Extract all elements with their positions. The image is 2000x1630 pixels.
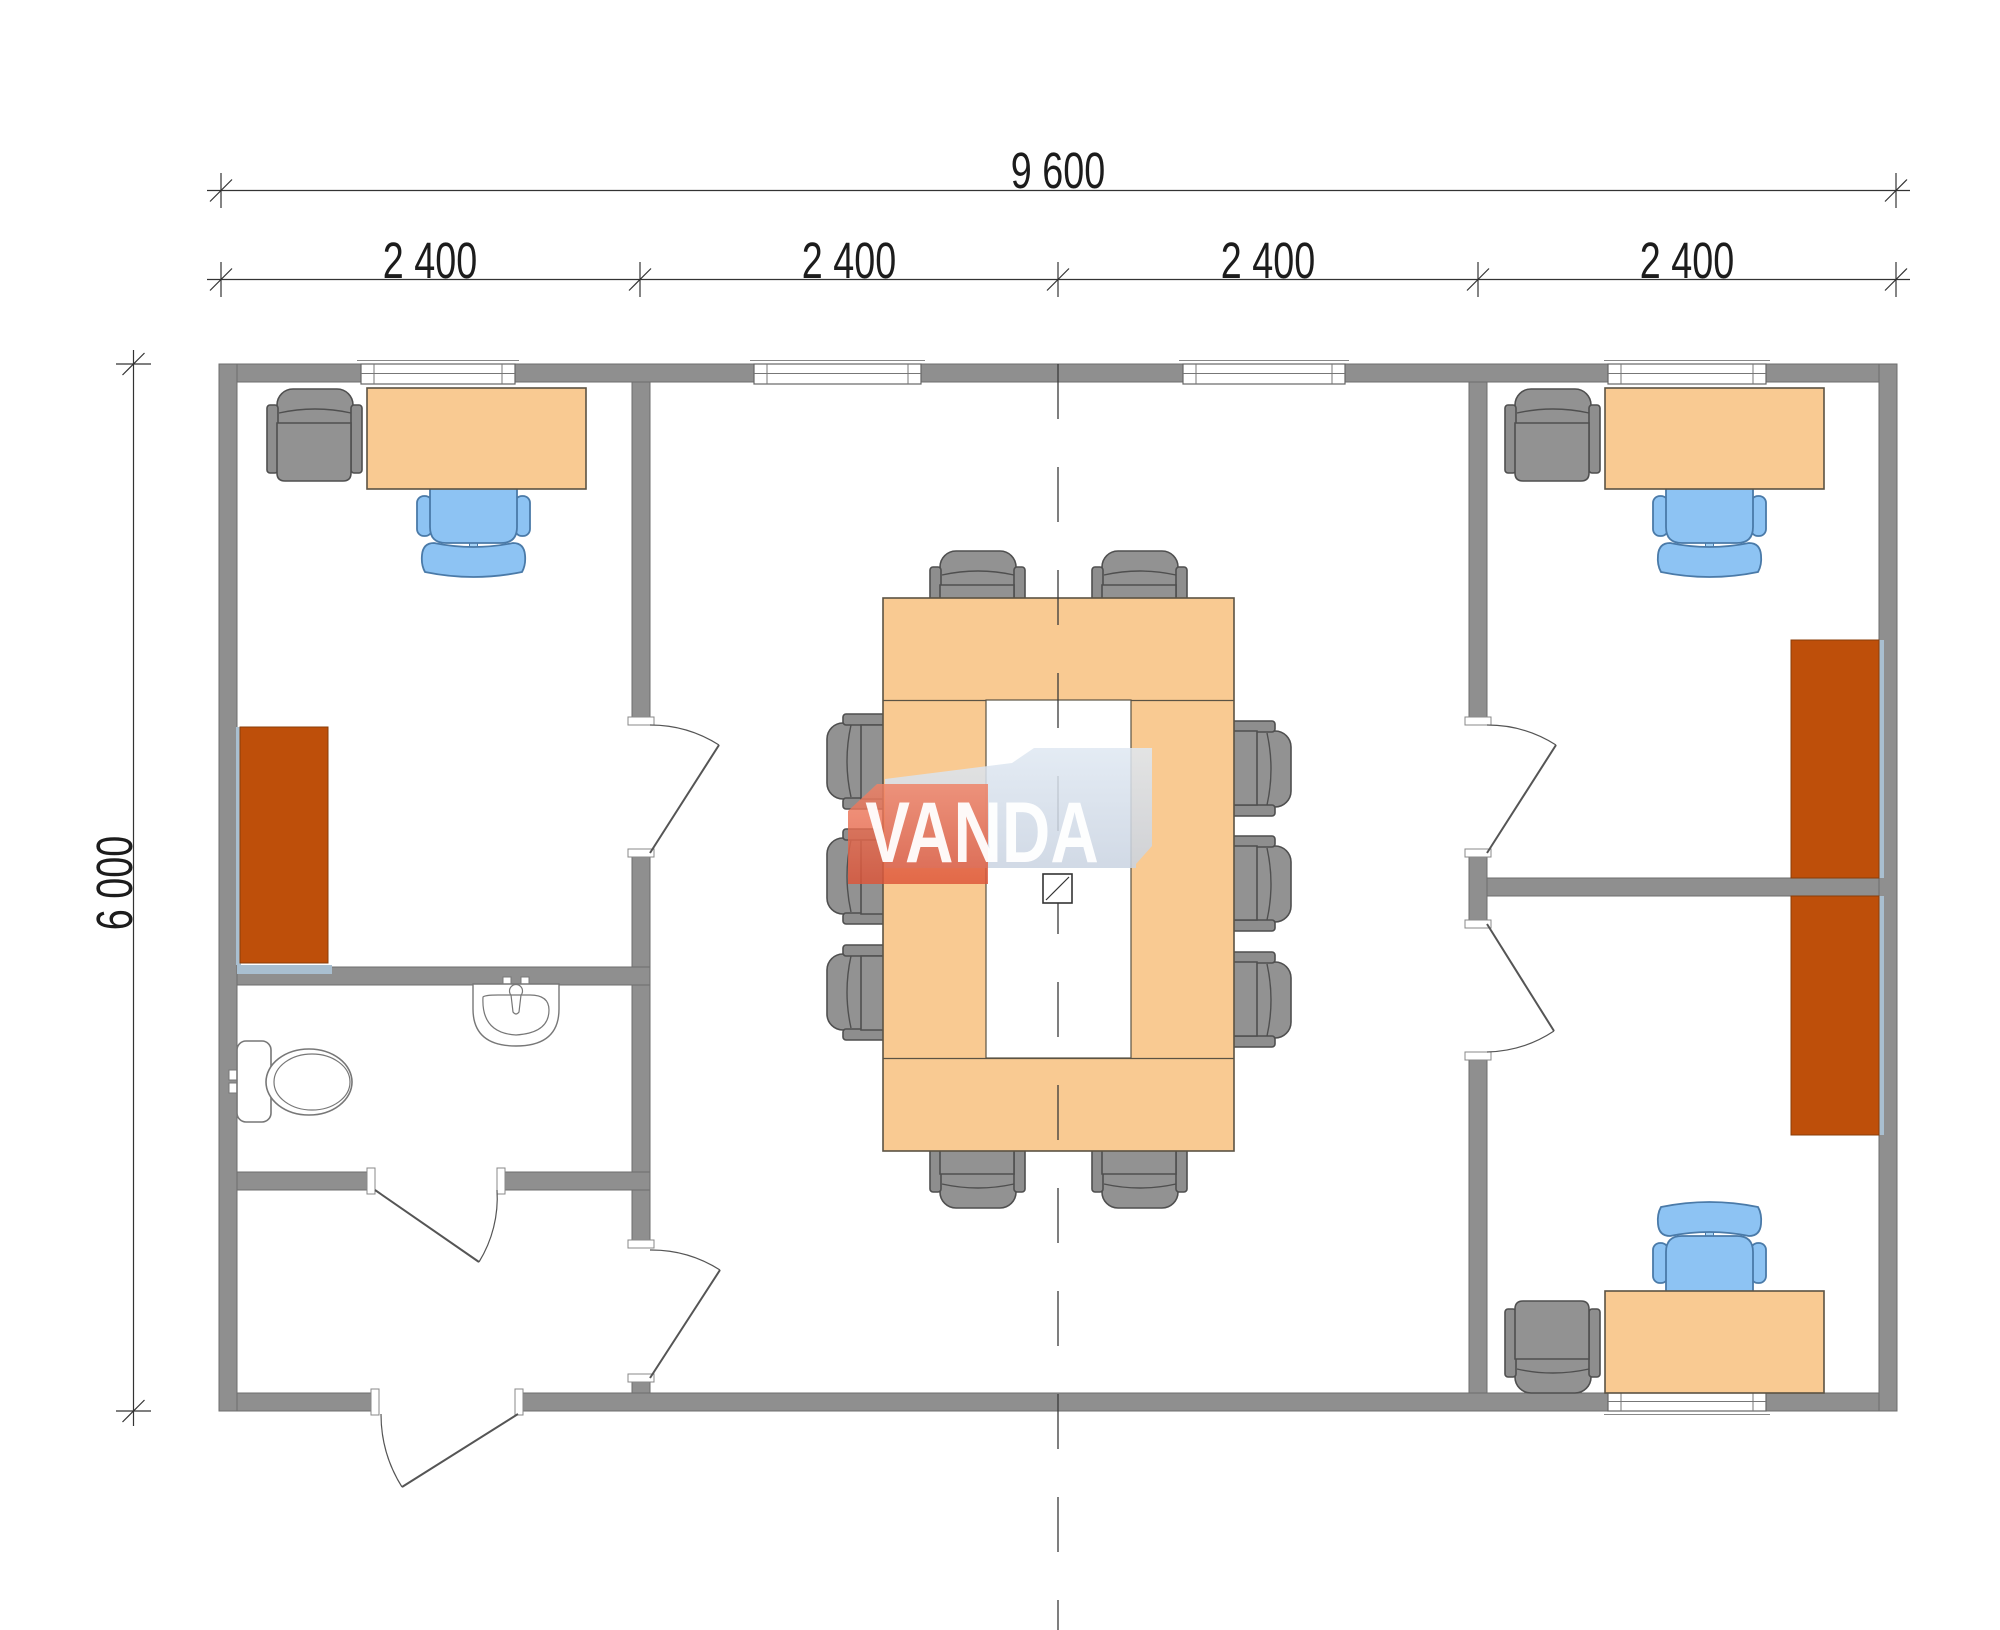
svg-text:2 400: 2 400 [1640,231,1734,289]
svg-text:2 400: 2 400 [802,231,896,289]
svg-text:VANDA: VANDA [865,785,1098,881]
svg-text:6 000: 6 000 [85,836,143,930]
svg-text:2 400: 2 400 [1221,231,1315,289]
svg-text:2 400: 2 400 [383,231,477,289]
svg-text:9 600: 9 600 [1011,141,1105,199]
